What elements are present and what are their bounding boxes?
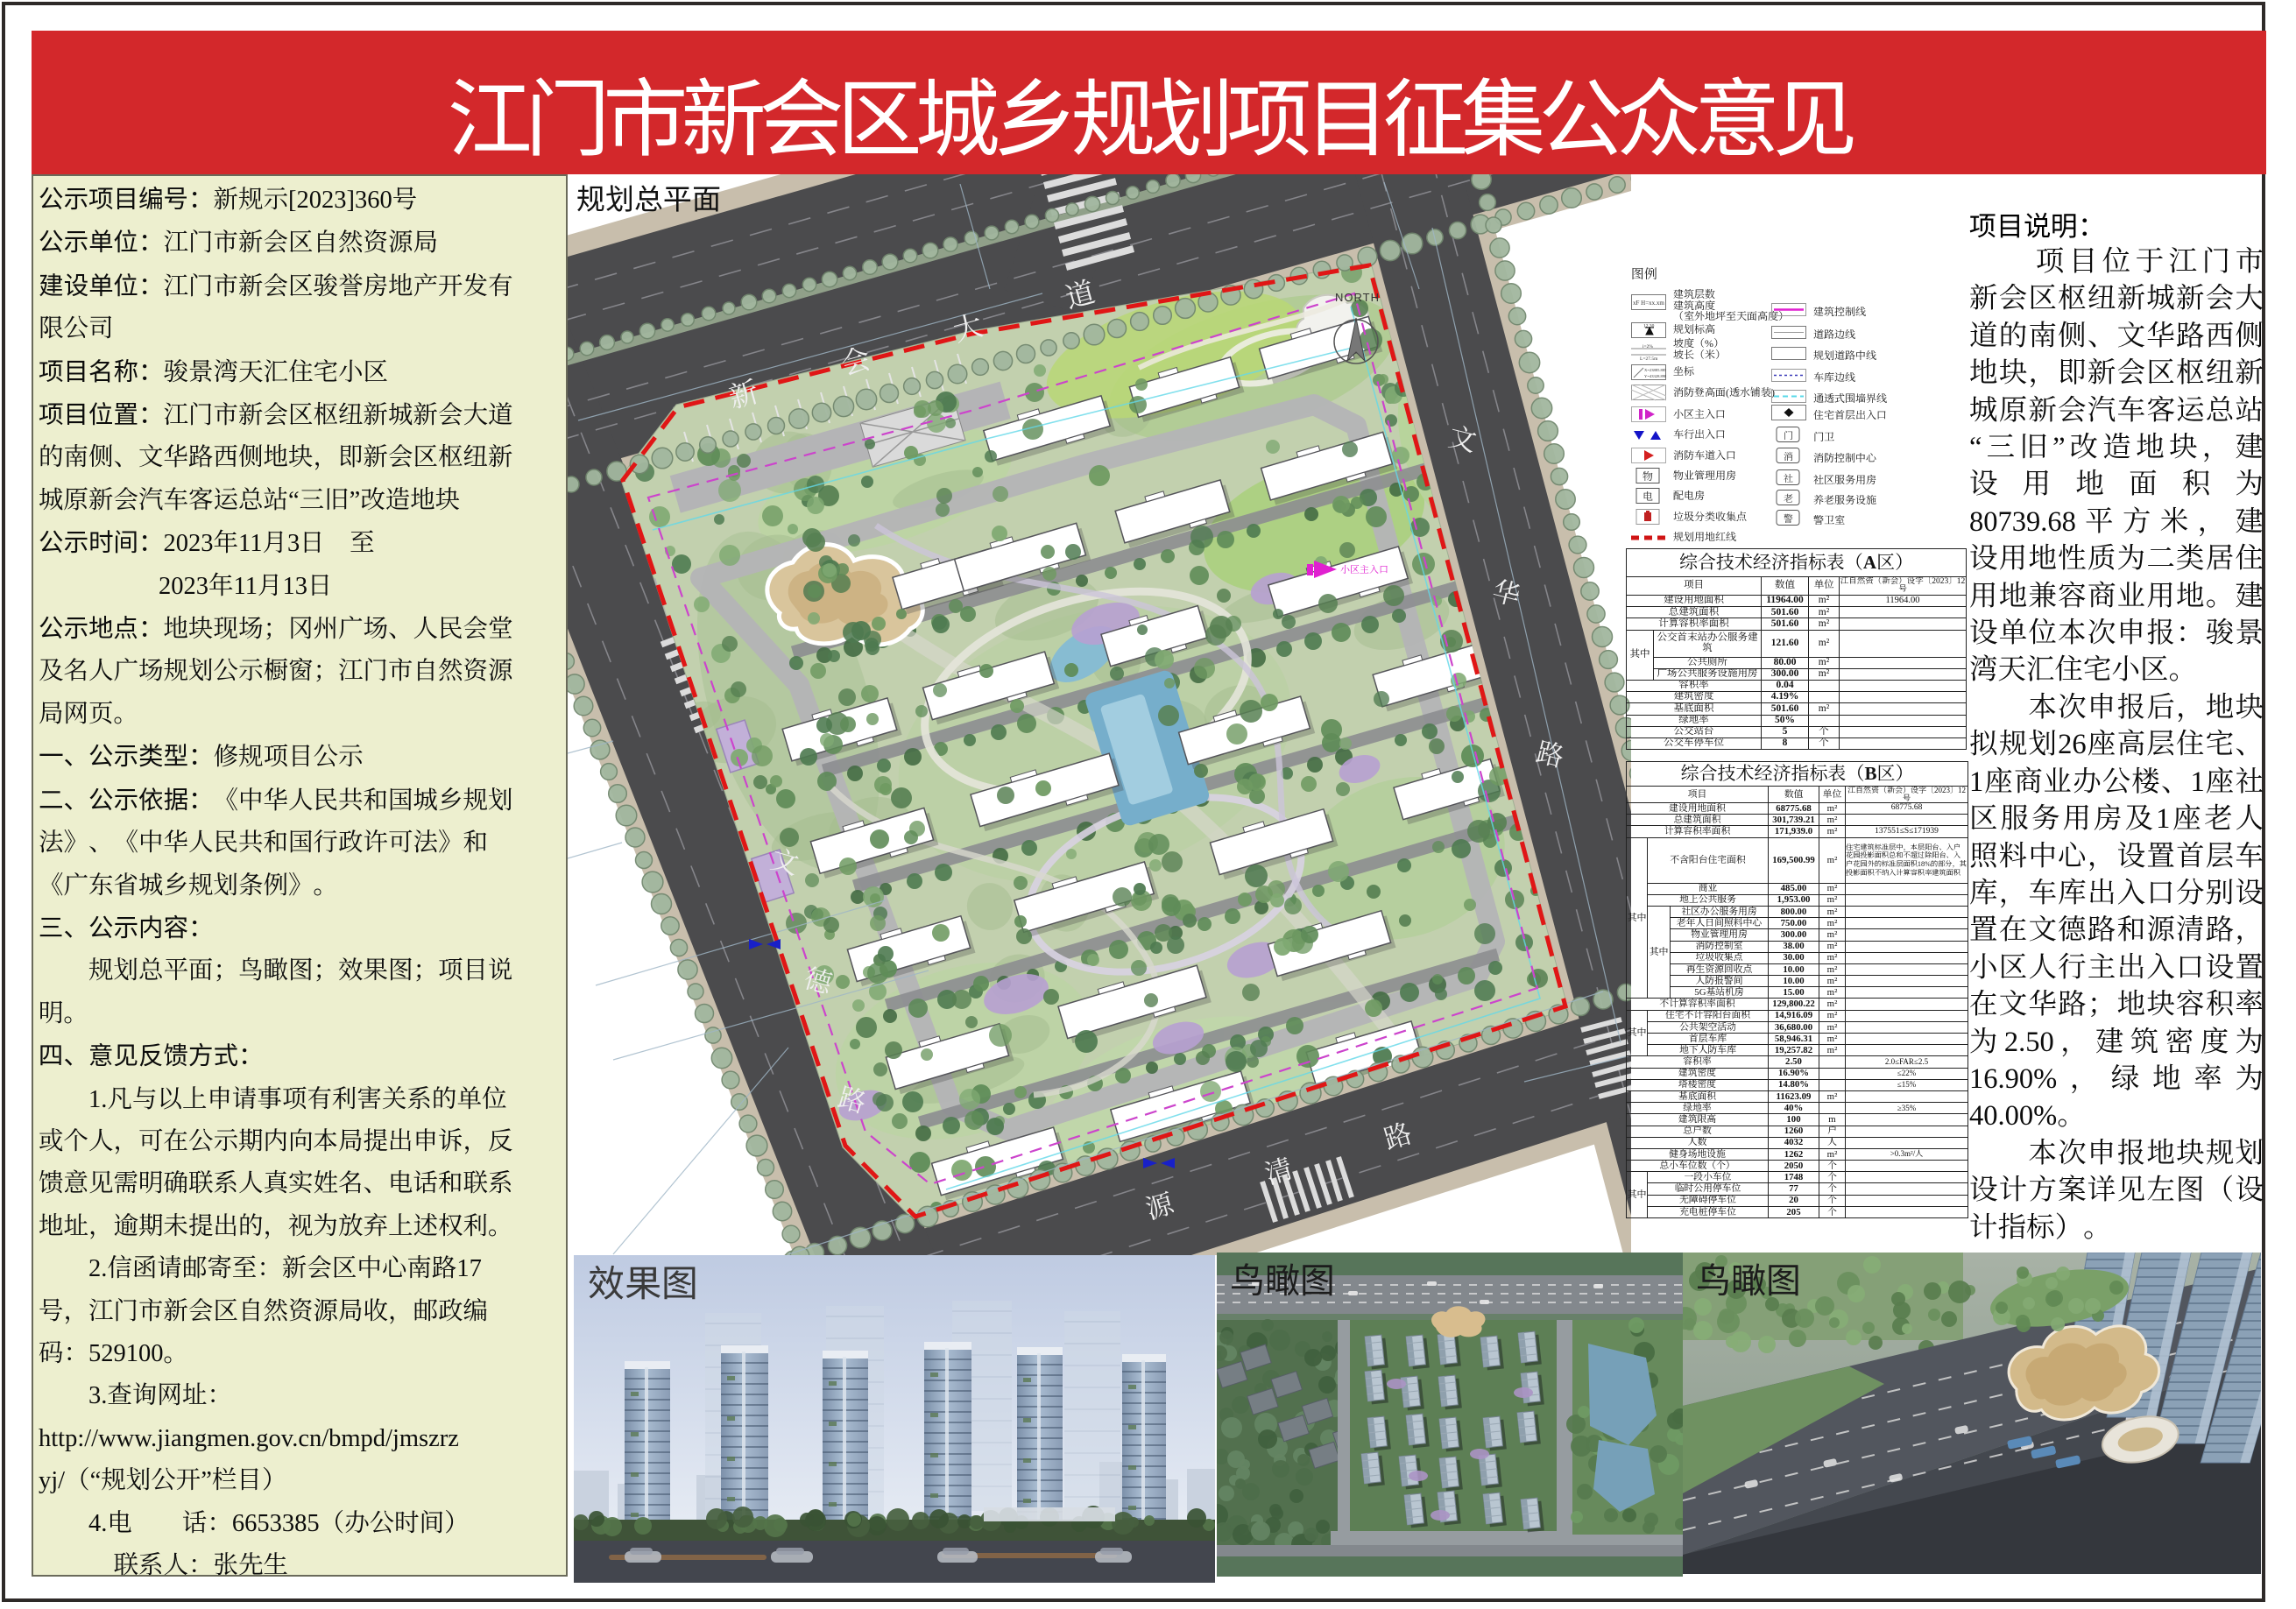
svg-text:物: 物 [1643, 469, 1653, 483]
svg-text:12.30: 12.30 [1643, 324, 1655, 329]
svg-text:i=2%: i=2% [1643, 344, 1653, 349]
svg-text:X=23885.885: X=23885.885 [1644, 368, 1666, 372]
svg-text:鸟瞰图: 鸟瞰图 [1230, 1262, 1335, 1301]
svg-text:电: 电 [1643, 489, 1653, 504]
svg-text:门: 门 [1784, 428, 1793, 442]
svg-text:小区主入口: 小区主入口 [1340, 562, 1388, 576]
svg-text:L=27.5m: L=27.5m [1640, 356, 1658, 361]
svg-text:NORTH: NORTH [1335, 291, 1380, 304]
svg-text:警: 警 [1784, 512, 1793, 526]
svg-text:消: 消 [1784, 449, 1793, 463]
svg-text:xF H=xx.xm: xF H=xx.xm [1633, 300, 1664, 307]
svg-text:社: 社 [1784, 471, 1793, 485]
svg-text:老: 老 [1784, 491, 1793, 505]
svg-text:效果图: 效果图 [588, 1263, 698, 1304]
svg-text:Y=43328.898: Y=43328.898 [1644, 374, 1666, 378]
svg-text:鸟瞰图: 鸟瞰图 [1696, 1262, 1801, 1301]
